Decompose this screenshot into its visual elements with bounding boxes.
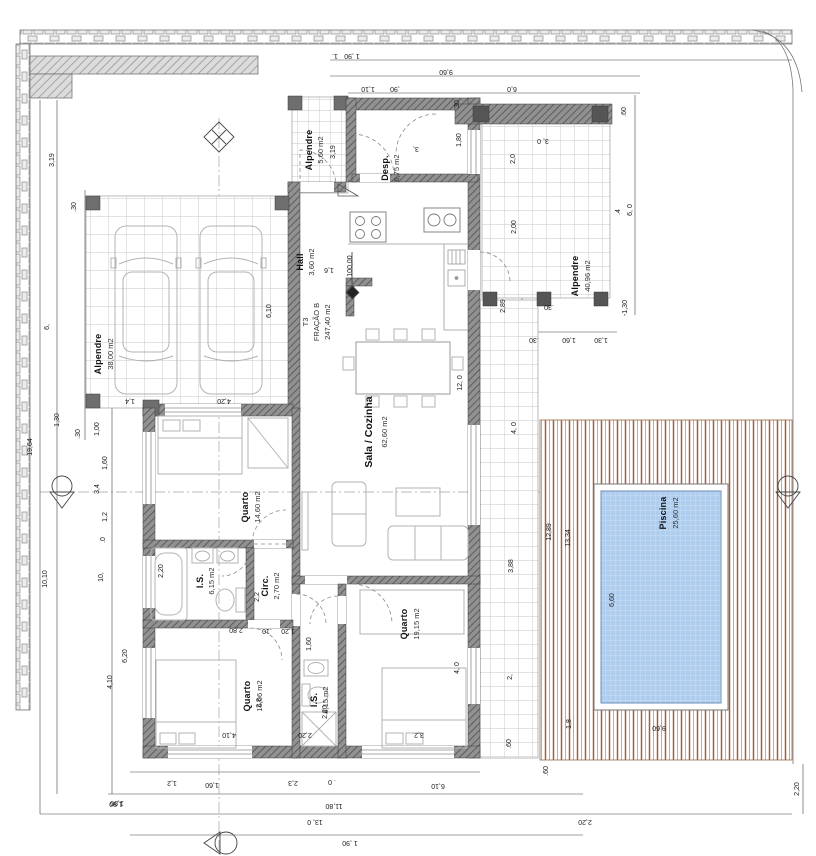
level-value: 100,00: [347, 255, 354, 277]
washbasin-2: [304, 660, 328, 676]
dim-br-220b: 2,20: [794, 782, 801, 796]
door-gap: [300, 182, 334, 192]
window-gap: [165, 404, 241, 416]
dim-desp-180: 1,80: [456, 133, 463, 147]
dim-bot3-1180: 11,80: [325, 802, 342, 809]
dim-left-319: 3,19: [49, 153, 56, 167]
dim-right-40: 4, 0: [511, 422, 518, 434]
dim-br-220a: 2,20: [578, 818, 592, 825]
room-sala-area: 62,60 m2: [380, 416, 389, 447]
dim-bot2-160: 1,60: [205, 781, 219, 788]
bed-1: [158, 416, 242, 474]
room-quarto2-name: Quarto: [242, 680, 252, 711]
room-hall-area: 3,60 m2: [307, 248, 316, 275]
door-gap: [338, 596, 346, 624]
dim-top-90: ,90: [390, 85, 400, 92]
dim-is2-220: 2,20: [322, 705, 329, 719]
terrace-tiles: [480, 300, 538, 758]
room-garage-area: 38,00 m2: [106, 338, 115, 369]
dim-left-0: .0: [100, 537, 107, 543]
door-gap: [305, 576, 347, 584]
dim-left-34: 3,4: [94, 484, 101, 494]
room-circ-name: Circ.: [260, 575, 270, 596]
dim-mid-10: .10: [262, 627, 272, 634]
dim-row-30: .30: [529, 336, 539, 343]
dim-bot2-23: 2,3: [288, 779, 298, 786]
room-is2-name: I.S.: [309, 693, 319, 707]
dim-wing-30a: .30: [454, 100, 461, 110]
floor-plan-sheet: Alpendre5,60 m23,19Desp.6,75 m2Hall3,60 …: [0, 0, 816, 856]
wall-left-upper: [288, 182, 300, 412]
floor-plan-drawing: Alpendre5,60 m23,19Desp.6,75 m2Hall3,60 …: [0, 0, 816, 856]
dim-mid-120: 1,20: [281, 627, 295, 634]
window-gap: [468, 130, 480, 174]
room-quarto3-area: 19,15 m2: [412, 608, 421, 639]
wall-stub-a: [346, 278, 372, 286]
dim-pool-660: 6,60: [609, 593, 616, 607]
dim-left-1010: 10,10: [42, 570, 49, 588]
column: [594, 292, 608, 306]
pool-area: [540, 420, 792, 760]
dim-wing-20: 2,0: [510, 154, 517, 164]
dim-bot4-130: 13, 0: [307, 818, 323, 825]
dim-left-10: 10,: [98, 572, 105, 582]
dim-left-100: 1,00: [94, 422, 101, 436]
wall-porch-desp: [346, 98, 356, 182]
window-gap: [143, 556, 155, 608]
column: [483, 292, 497, 306]
stove: [350, 212, 386, 242]
dim-bot5-190: 1 ,90: [342, 839, 358, 846]
dim-left-12: 1,2: [102, 512, 109, 522]
room-circ-area: 2,70 m2: [272, 572, 281, 599]
dim-br-18: 1,8: [566, 719, 573, 729]
room-quarto1-area: 14,60 m2: [253, 491, 262, 522]
stone-wall-b: [30, 74, 72, 98]
dim-left-620: 6,20: [122, 649, 129, 663]
sliding-door-gap: [468, 425, 480, 525]
dim-garage-14: 1,4: [125, 397, 135, 404]
dim-wing-4: .4: [615, 209, 622, 215]
kitchen-sink: [424, 208, 460, 232]
site-wall-top: [20, 30, 792, 44]
stone-wall-a: [30, 56, 258, 74]
room-garage-name: Alpendre: [93, 334, 103, 375]
door-gap: [248, 620, 280, 628]
room-hall-name: Hall: [295, 253, 305, 270]
dim-top-60: 6,0: [507, 85, 517, 92]
dim-br-60a: .60: [506, 739, 513, 749]
wall-is1-circ: [246, 548, 254, 622]
column: [288, 96, 302, 110]
room-desp-name: Desp.: [380, 155, 390, 181]
toilet-1: [216, 588, 245, 612]
window-gap: [468, 648, 480, 704]
dim-wing-289: 2,89: [500, 299, 507, 313]
dim-q3-40: 4, 0: [454, 662, 461, 674]
benchmark-left: [50, 476, 74, 508]
dim-bot-32: 3,2: [414, 731, 424, 738]
room-is1-area: 6,15 m2: [207, 567, 216, 594]
dim-left-1964: 19,64: [27, 438, 34, 456]
dim-mid-280: 2,80: [229, 626, 243, 633]
dim-row-130: 1,30: [594, 336, 608, 343]
dim-left-410: 4,10: [107, 675, 114, 689]
column: [275, 196, 289, 210]
dim-sala-120: 12, 0: [457, 375, 464, 391]
dim-right-1289: 12,89: [546, 523, 553, 541]
dim-left-30a: .30: [71, 202, 78, 212]
dim-left-130: 1,30: [54, 413, 61, 427]
dim-bot-220: 2,20: [298, 731, 312, 738]
dim-top-190: 1 ,90: [344, 52, 360, 59]
kitchen-counter: [348, 244, 468, 330]
room-piscina-area: 25,60 m2: [671, 497, 680, 528]
dim-garage-420: 4,20: [217, 397, 231, 404]
dim-right-1334: 13,34: [565, 529, 572, 547]
dim-q2-28: 2,8: [256, 698, 263, 708]
door-gap: [468, 250, 480, 290]
room-quarto1-name: Quarto: [240, 491, 250, 522]
shower: [302, 712, 336, 746]
dim-br-60b: .60: [543, 766, 550, 776]
dim-alpendre-top: 3,19: [330, 145, 337, 159]
dim-pool-960: 9,60: [652, 724, 666, 731]
column: [86, 196, 100, 210]
room-quarto3-name: Quarto: [399, 608, 409, 639]
room-piscina-name: Piscina: [658, 496, 668, 530]
room-rporch-area: 40,96 m2: [583, 260, 592, 291]
dim-wing-30c: .30: [544, 303, 554, 310]
dim-wing-200: 2,00: [511, 220, 518, 234]
dim-top-1: 1.: [332, 52, 338, 59]
dim-wing-30b: 3, 0: [537, 137, 549, 144]
dim-circ-22: 2,2: [254, 592, 261, 602]
dining-table: [343, 329, 463, 407]
washbasins: [192, 548, 238, 563]
dim-bot2-610: 6,10: [431, 782, 445, 789]
dim-bot2-0: . 0: [328, 778, 336, 785]
garage-porch-tiles: [86, 196, 289, 408]
dim-hall-16: 1,6: [324, 266, 334, 273]
dim-top-960: 9,60: [439, 68, 453, 75]
dim-wing-m130: -1,30: [622, 300, 629, 316]
dim-bot-410: 4,10: [222, 731, 236, 738]
dim-bot3-190: 1,90: [109, 800, 123, 807]
dim-top-110: 1,10: [361, 85, 375, 92]
room-sala-name: Sala / Cozinha: [363, 396, 375, 467]
room-alpendre-top-name: Alpendre: [304, 130, 314, 171]
window-gap: [143, 648, 155, 718]
dim-tub-220: 2,20: [158, 564, 165, 578]
dim-left-30b: .30: [75, 429, 82, 439]
dim-right-388: 3,88: [508, 559, 515, 573]
room-alpendre-top-area: 5,60 m2: [316, 136, 325, 163]
dim-left-160: 1,60: [102, 456, 109, 470]
room-desp-area: 6,75 m2: [392, 154, 401, 181]
dim-is2-160: 1,60: [306, 637, 313, 651]
title-fraction-line1: T3: [301, 318, 310, 327]
dim-right-2: 2,: [507, 674, 514, 680]
window-gap: [143, 432, 155, 504]
dim-row-160: 1,60: [562, 336, 576, 343]
column: [473, 106, 489, 122]
dim-desp-3: 3,: [413, 145, 419, 152]
column: [592, 106, 608, 122]
room-rporch-name: Alpendre: [570, 256, 580, 297]
title-fraction-line2: FRAÇÃO B: [312, 303, 321, 341]
room-is1-name: I.S.: [195, 574, 205, 588]
dim-wing-6_0: 6, 0: [627, 204, 634, 216]
dim-garage-610: 6,10: [266, 304, 273, 318]
dim-bot2-12: 1,2: [167, 779, 177, 786]
column: [86, 394, 100, 408]
site-wall-left: [16, 44, 30, 710]
title-fraction-line3: 247,40 m2: [323, 304, 332, 339]
bathtub: [151, 548, 187, 620]
wardrobe-1: [248, 418, 288, 468]
sofa-set: [302, 482, 468, 560]
dim-left-6: 6,: [44, 324, 51, 330]
dim-wing-60a: .60: [621, 107, 628, 117]
